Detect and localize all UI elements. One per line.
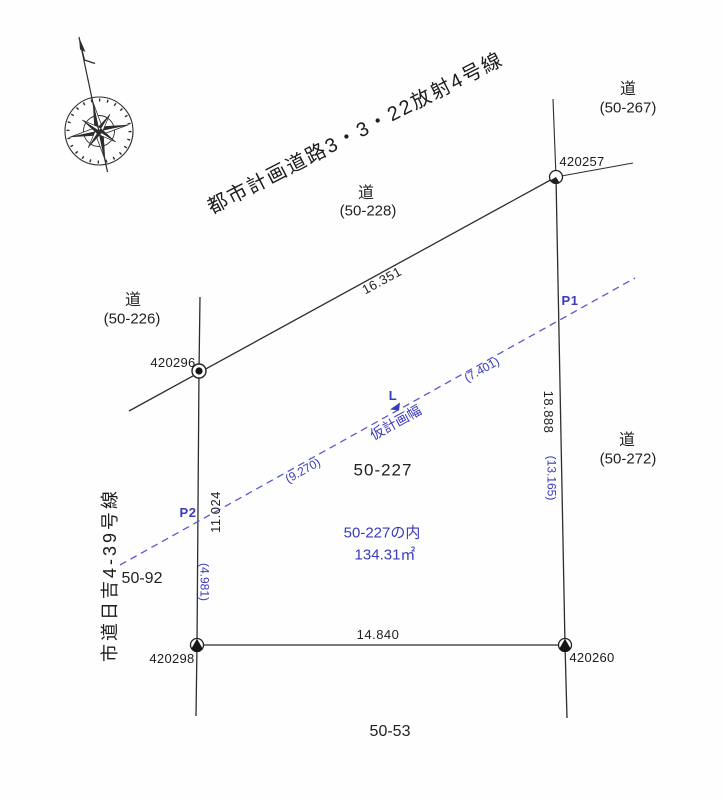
- plan-dimension-west-4981: (4.981): [197, 563, 212, 601]
- north-stub-line: [553, 99, 556, 177]
- road-226-code: (50-226): [104, 311, 161, 330]
- east-boundary-line: [556, 177, 567, 718]
- lot-50-227: 50-227: [354, 459, 413, 480]
- dimension-south-14840: 14.840: [357, 627, 400, 643]
- road-228-code: (50-228): [340, 203, 397, 222]
- lot-50-53: 50-53: [370, 722, 411, 742]
- plan-dimension-east-13165: (13.165): [544, 456, 559, 501]
- road-267-kanji: 道: [620, 80, 636, 100]
- road-226-kanji: 道: [125, 291, 141, 311]
- lot-50-92: 50-92: [122, 569, 163, 589]
- survey-point-marker-420257: [550, 171, 563, 184]
- dimension-east-18888: 18.888: [540, 391, 556, 434]
- parcel-area: 134.31㎡: [355, 547, 416, 566]
- north-needle-icon: [79, 37, 108, 172]
- plan-line-l-label: L: [389, 388, 397, 404]
- road-228-kanji: 道: [358, 184, 374, 204]
- point-label-420298: 420298: [149, 651, 194, 667]
- city-road-name: 市道日吉4-39号線: [99, 488, 122, 662]
- road-267-code: (50-267): [600, 100, 657, 119]
- west-boundary-line: [196, 297, 200, 716]
- dimension-west-11024: 11.024: [208, 491, 224, 533]
- road-272-kanji: 道: [619, 431, 635, 451]
- parcel-inner-name: 50-227の内: [344, 525, 421, 544]
- road-272-code: (50-272): [600, 451, 657, 470]
- compass-rose-icon: [63, 37, 134, 172]
- point-label-420260: 420260: [569, 650, 614, 666]
- plan-point-p2: P2: [180, 505, 197, 521]
- plan-point-p1: P1: [562, 293, 579, 309]
- cadastral-drawing: 都市計画道路3・3・22放射4号線 道 (50-228) 道 (50-267) …: [0, 0, 722, 800]
- point-label-420296: 420296: [150, 355, 195, 371]
- point-label-420257: 420257: [559, 154, 604, 170]
- plan-width-dashed-line: [120, 278, 635, 565]
